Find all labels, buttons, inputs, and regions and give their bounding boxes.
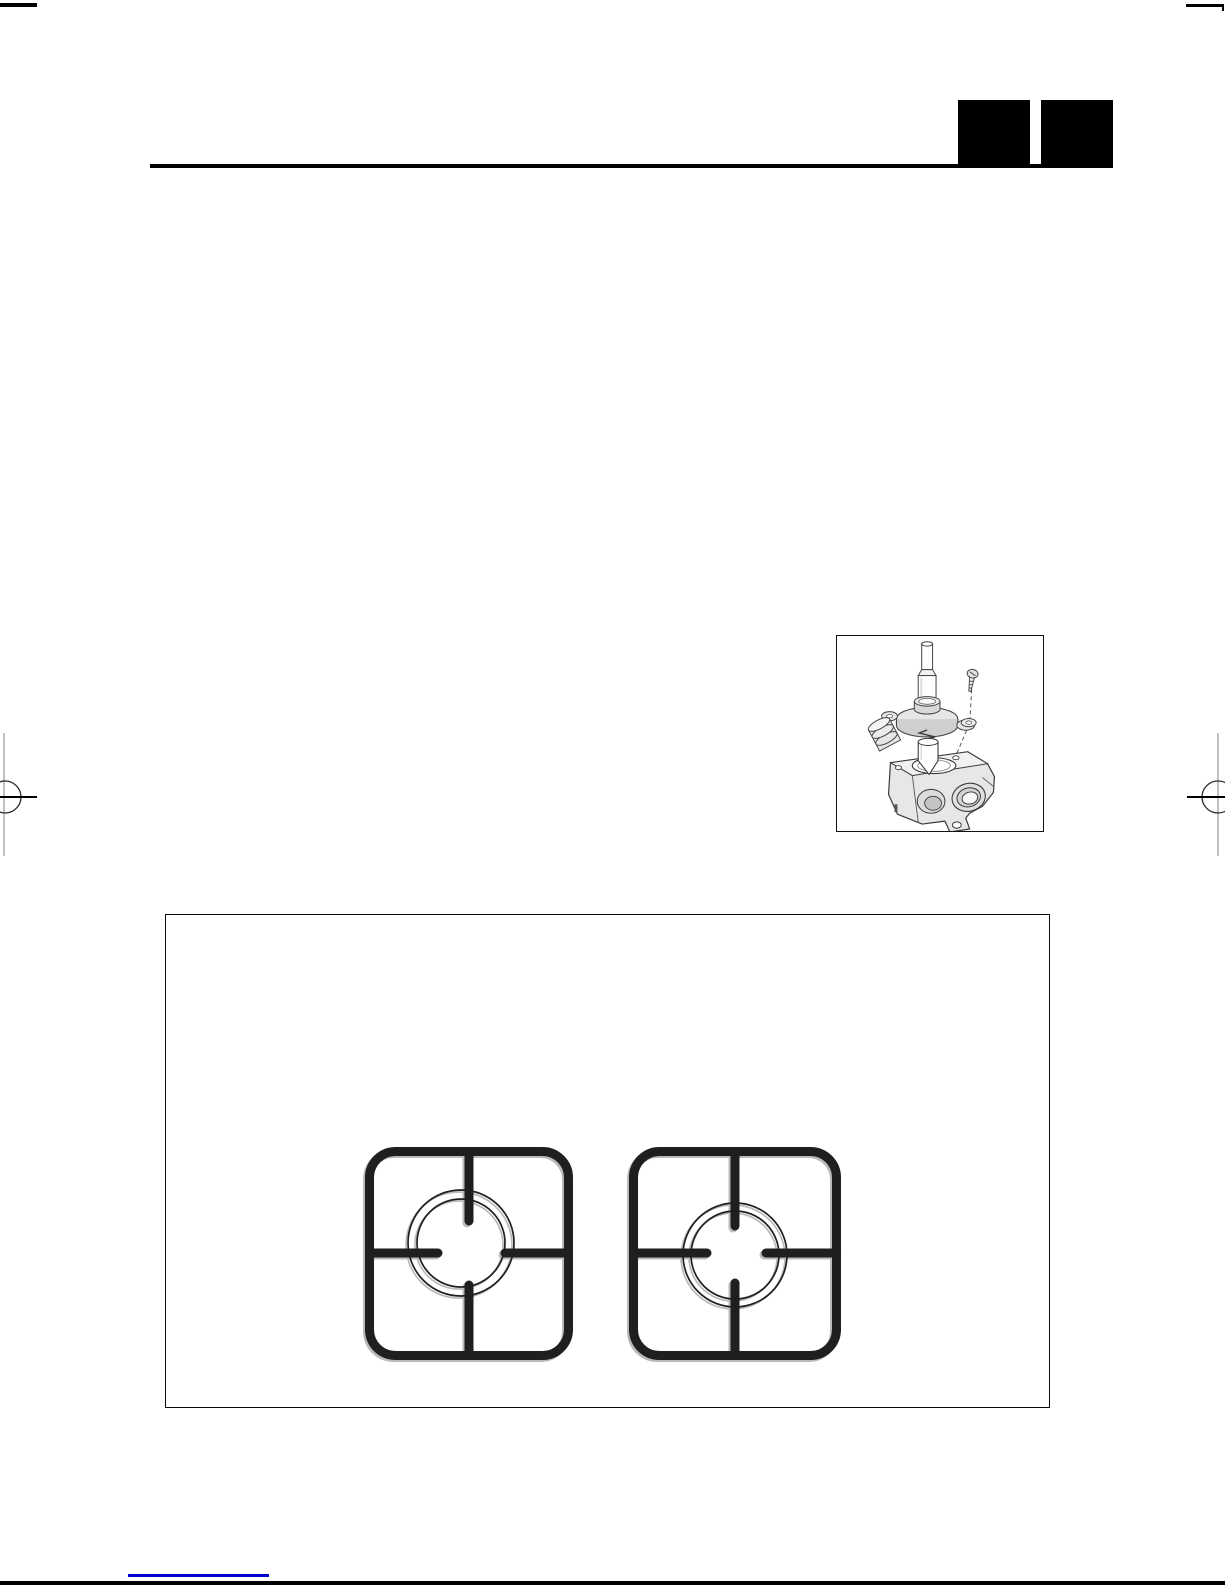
screw-hole-right bbox=[953, 756, 959, 760]
screw-hole-left bbox=[895, 766, 901, 770]
pan-supports-figure-frame bbox=[165, 914, 1050, 1408]
grate-fingers bbox=[633, 1151, 837, 1356]
pan-support-grate-left bbox=[365, 1147, 573, 1360]
trim-tick-top-right-nub-icon bbox=[1222, 4, 1224, 11]
document-page bbox=[0, 0, 1225, 1585]
inlet-port bbox=[866, 715, 900, 751]
grate-fingers bbox=[369, 1151, 569, 1356]
front-boss bbox=[917, 789, 945, 813]
chapter-number-block-1 bbox=[958, 100, 1030, 168]
page-bottom-bar bbox=[0, 1581, 1225, 1585]
gas-tap-exploded-diagram bbox=[837, 636, 1043, 831]
valve-body bbox=[889, 752, 995, 831]
gas-tap-figure-box bbox=[836, 635, 1044, 832]
tap-stem bbox=[918, 642, 936, 702]
registration-target-right-icon bbox=[1180, 733, 1225, 861]
pan-support-grate-right bbox=[629, 1147, 841, 1360]
chapter-number-block-2 bbox=[1041, 100, 1113, 168]
left-face-slot bbox=[894, 804, 897, 812]
trim-tick-top-right-icon bbox=[1186, 4, 1224, 7]
mounting-tab-hole bbox=[952, 822, 961, 828]
washer-icon bbox=[961, 718, 976, 726]
fixing-screw-icon bbox=[964, 669, 978, 693]
footer-link-underline[interactable] bbox=[128, 1574, 269, 1577]
registration-target-left-icon bbox=[0, 733, 45, 861]
burner-ring-inner bbox=[417, 1199, 505, 1287]
trim-tick-top-left-icon bbox=[0, 3, 37, 7]
burner-ring-outer bbox=[408, 1190, 514, 1296]
